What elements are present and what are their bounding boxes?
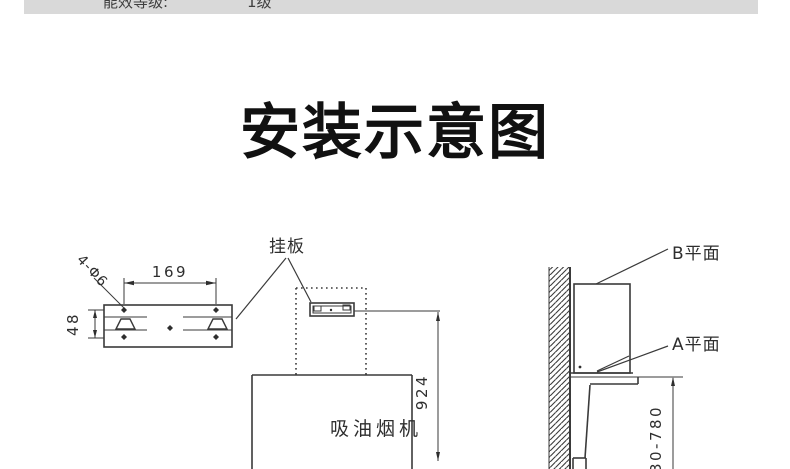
dim-48: 48	[64, 310, 104, 338]
page: 能效等级: 1级 安装示意图	[0, 0, 790, 469]
plate-hole	[121, 334, 127, 340]
dim-730-780: 730-780	[647, 377, 675, 469]
plate-hook-left	[116, 319, 135, 329]
dim-holes: 4-Φ6	[73, 252, 124, 308]
hood-side-profile	[570, 373, 683, 469]
plate-hole	[213, 334, 219, 340]
dim-range-label: 730-780	[647, 405, 665, 469]
dim-169: 169	[124, 263, 216, 304]
wall-hatch	[549, 267, 570, 469]
hood-front-figure: 挂板 吸油烟机	[236, 237, 440, 469]
wall-side-figure: B平面 A平面 730-780	[549, 244, 721, 469]
plane-a-label: A平面	[672, 335, 721, 355]
plate-hole	[213, 307, 219, 313]
plate-hook-right	[208, 319, 227, 329]
plate-leader-left	[236, 258, 286, 319]
plane-b-leader	[596, 249, 668, 284]
plate-label: 挂板	[269, 237, 305, 257]
dim-169-label: 169	[152, 263, 188, 281]
dim-holes-label: 4-Φ6	[73, 252, 111, 291]
dim-48-label: 48	[64, 312, 82, 336]
plate-hole-center	[167, 325, 173, 331]
mounted-plate	[310, 303, 354, 316]
hood-label: 吸油烟机	[330, 418, 422, 440]
installation-diagram: 169 48 4-Φ6 挂板	[0, 0, 790, 469]
dim-924-label: 924	[413, 374, 431, 410]
mounting-plate-figure: 169 48 4-Φ6	[64, 252, 232, 347]
plane-a-leader	[597, 346, 668, 372]
plate-leader-right	[288, 258, 311, 302]
plane-b-label: B平面	[672, 244, 721, 264]
